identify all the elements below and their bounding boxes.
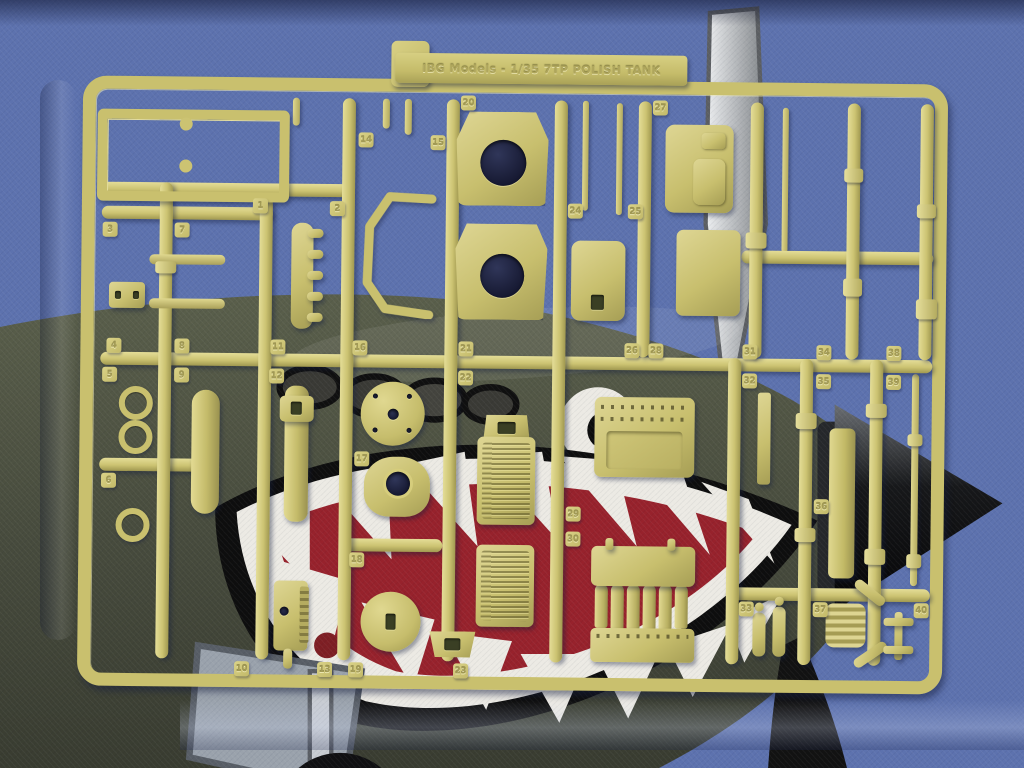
rod-collar <box>844 168 863 182</box>
cover-recess <box>591 546 651 553</box>
part-number-tab: 16 <box>352 340 367 355</box>
part-pin <box>405 99 412 135</box>
part-pin <box>383 99 390 129</box>
part-number-tab: 37 <box>813 602 828 617</box>
part-recoil-cylinder <box>191 390 220 514</box>
part-number-tab: 7 <box>175 222 190 237</box>
part-number-tab: 24 <box>568 204 583 219</box>
rivet-row <box>601 417 689 422</box>
part-number-tab: 23 <box>453 663 468 678</box>
part-hull-frame <box>97 109 290 203</box>
part-number-tab: 9 <box>174 367 189 382</box>
part-hull-roof <box>665 125 734 214</box>
part-number-tab: 11 <box>270 339 285 354</box>
part-number-tab: 14 <box>359 132 374 147</box>
part-number-tab: 31 <box>742 344 757 359</box>
engine-stud <box>605 538 613 550</box>
disc-seam <box>360 381 364 441</box>
engine-stud <box>667 539 675 551</box>
part-pin <box>293 98 300 126</box>
sprue-runner <box>845 103 861 359</box>
sprue-runner <box>918 104 934 360</box>
filter-cylinder <box>772 607 786 657</box>
bolt-row <box>596 634 688 639</box>
sprue-gate <box>180 117 193 130</box>
grille-louvres <box>481 551 530 621</box>
manifold-branch <box>307 250 323 259</box>
engine-crankcase <box>590 628 694 663</box>
bracket-hole <box>444 638 460 650</box>
rod-collar <box>794 528 815 542</box>
sprue-runner <box>726 587 930 602</box>
sprue-runner <box>102 206 273 221</box>
sprue-runner <box>340 538 442 552</box>
part-number-tab: 3 <box>103 222 118 237</box>
part-exhaust-manifold <box>291 223 314 329</box>
turret-opening <box>480 254 524 298</box>
bracket-hole <box>498 422 516 434</box>
part-number-tab: 13 <box>317 662 332 677</box>
part-idler-mount <box>825 603 865 647</box>
part-ring <box>119 386 153 420</box>
disc-bolt-hole <box>407 394 412 399</box>
sprue-gate <box>179 159 192 172</box>
engine-valve-cover <box>591 546 695 587</box>
part-periscope-housing <box>364 456 431 517</box>
part-number-tab: 8 <box>174 338 189 353</box>
box-opening <box>591 295 604 310</box>
part-gun-barrel <box>284 386 309 522</box>
part-number-tab: 5 <box>102 367 117 382</box>
part-radiator-bracket-upper <box>483 415 529 439</box>
filter-cylinder <box>752 612 765 656</box>
part-number-tab: 26 <box>624 343 639 358</box>
sprue-runner <box>636 101 652 357</box>
part-number-tab: 15 <box>430 135 445 150</box>
part-number-tab: 19 <box>348 662 363 677</box>
part-oil-filters <box>752 604 789 660</box>
sprue-label-bar: IBG Models - 1/35 7TP POLISH TANK <box>395 53 687 86</box>
part-number-tab: 38 <box>886 346 901 361</box>
manifold-branch <box>307 292 323 301</box>
part-number-tab: 20 <box>461 95 476 110</box>
sprue-label-text: IBG Models - 1/35 7TP POLISH TANK <box>422 61 661 76</box>
deck-recess <box>606 431 682 470</box>
periscope-opening <box>386 472 410 496</box>
part-stowage-box <box>571 241 626 322</box>
part-number-tab: 4 <box>106 338 121 353</box>
part-number-tab: 27 <box>653 100 668 115</box>
rod-collar <box>796 413 817 429</box>
part-ring <box>118 420 152 454</box>
part-number-tab: 28 <box>648 343 663 358</box>
disc-bolt-hole <box>373 428 378 433</box>
part-number-tab: 1 <box>253 198 268 213</box>
sprue-frame-b: B IBG Models - 1/35 7TP POLISH TANK <box>77 75 955 700</box>
manifold-branch <box>307 271 323 280</box>
bracket-cross <box>883 646 913 654</box>
part-number-tab: 2 <box>330 201 345 216</box>
rod-collar <box>917 204 936 218</box>
part-number-tab: 33 <box>739 601 754 616</box>
rod-collar <box>866 404 887 418</box>
bracket-cross <box>884 618 914 626</box>
part-number-tab: 36 <box>814 499 829 514</box>
engine-cylinders <box>594 584 690 631</box>
rod-collar <box>907 434 922 446</box>
part-number-tab: 12 <box>269 368 284 383</box>
part-radiator-grille-1 <box>477 437 536 526</box>
rod-collar <box>864 549 885 565</box>
barrel-collar <box>280 396 314 422</box>
photo-scene: { "sprue_label": { "letter": "B", "title… <box>0 0 1024 768</box>
part-number-tab: 10 <box>234 661 249 676</box>
part-number-tab: 21 <box>458 341 473 356</box>
part-ring <box>115 508 149 542</box>
part-number-tab: 22 <box>458 370 473 385</box>
rod-collar <box>906 554 921 568</box>
part-turret-hatch-disc <box>360 381 425 446</box>
mount-hole <box>280 607 289 616</box>
part-number-tab: 30 <box>565 532 580 547</box>
part-engine-hatch-box <box>676 230 741 317</box>
part-axle-pin <box>149 298 225 309</box>
part-flat-strip <box>757 393 771 485</box>
sprue-runner <box>748 102 764 358</box>
part-number-tab: 39 <box>886 375 901 390</box>
gear-rack-teeth <box>299 587 309 643</box>
part-thin-rod <box>582 101 589 211</box>
manifold-branch <box>307 313 323 322</box>
part-turret-shell-lower <box>455 223 548 320</box>
bracket-hole <box>133 291 139 299</box>
hatch-seam <box>676 230 679 308</box>
part-number-tab: 40 <box>914 603 929 618</box>
part-number-tab: 25 <box>628 204 643 219</box>
bracket-hole <box>115 291 121 299</box>
part-gun-mount-rack <box>273 580 308 650</box>
part-number-tab: 6 <box>101 473 116 488</box>
rod-collar <box>916 299 937 319</box>
roof-seam <box>665 125 668 201</box>
part-number-tab: 18 <box>349 552 364 567</box>
part-number-tab: 29 <box>566 507 581 522</box>
part-engine-block <box>590 544 695 663</box>
manifold-branch <box>308 229 324 238</box>
disc-bolt-hole <box>373 394 378 399</box>
rod-collar <box>155 261 176 273</box>
part-number-tab: 32 <box>742 373 757 388</box>
disc-slot <box>385 614 395 630</box>
part-thin-rod <box>616 103 623 215</box>
part-number-tab: 17 <box>354 451 369 466</box>
part-radiator-bracket-lower <box>429 631 475 657</box>
mount-stem <box>283 649 292 669</box>
part-turret-shell-upper <box>456 111 549 206</box>
filter-cap <box>775 597 784 606</box>
disc-bolt-hole <box>407 428 412 433</box>
filter-cap <box>755 603 764 612</box>
part-turret-ring-frame <box>361 190 446 319</box>
part-radiator-grille-2 <box>475 545 534 628</box>
rod-collar <box>745 232 766 248</box>
rod-collar <box>843 278 862 296</box>
rivet-row <box>601 405 689 410</box>
part-number-tab: 34 <box>816 345 831 360</box>
collar-opening <box>291 402 302 415</box>
box-seam <box>572 241 618 243</box>
part-hatch-disc-small <box>360 591 421 652</box>
sprue-runner <box>741 250 933 265</box>
part-small-bracket-box <box>109 282 145 308</box>
part-engine-deck <box>594 397 695 478</box>
grille-louvres <box>482 443 531 519</box>
hatch-small <box>702 133 726 149</box>
sprue-runner <box>99 458 199 472</box>
part-tow-bracket <box>883 612 914 660</box>
hatch-large <box>693 159 725 205</box>
disc-center-hole <box>388 409 399 420</box>
part-number-tab: 35 <box>816 374 831 389</box>
turret-opening <box>480 140 526 186</box>
part-leaf-spring <box>828 428 856 578</box>
